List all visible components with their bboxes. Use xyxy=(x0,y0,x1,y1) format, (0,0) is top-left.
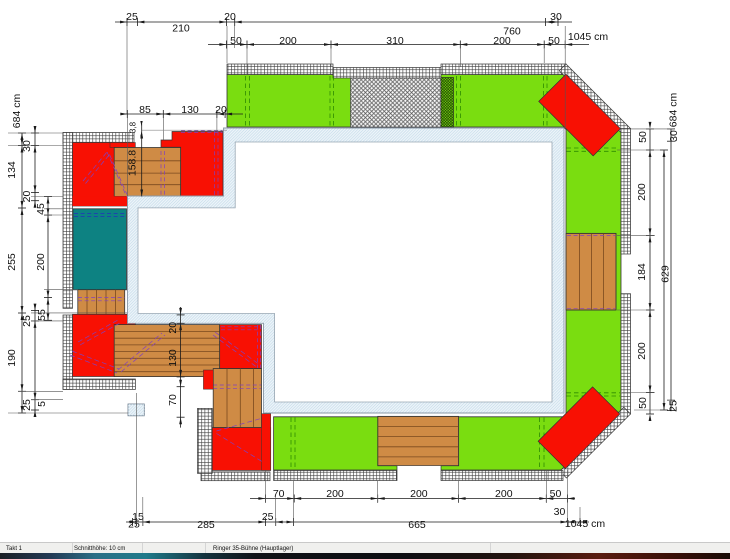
svg-text:684 cm: 684 cm xyxy=(11,94,23,129)
svg-text:25: 25 xyxy=(128,519,140,531)
svg-text:200: 200 xyxy=(636,342,648,360)
svg-text:158.8: 158.8 xyxy=(127,150,139,176)
svg-text:629: 629 xyxy=(660,265,672,283)
svg-text:5: 5 xyxy=(36,401,48,407)
svg-text:25: 25 xyxy=(668,400,680,412)
svg-text:210: 210 xyxy=(172,23,190,35)
svg-text:184: 184 xyxy=(636,263,648,281)
svg-text:30: 30 xyxy=(550,11,562,23)
svg-text:25: 25 xyxy=(126,11,138,23)
svg-text:20: 20 xyxy=(215,104,227,116)
svg-text:134: 134 xyxy=(6,161,18,179)
svg-text:50: 50 xyxy=(637,131,649,143)
svg-text:130: 130 xyxy=(167,349,179,367)
svg-text:200: 200 xyxy=(35,253,47,271)
svg-text:50: 50 xyxy=(637,397,649,409)
svg-text:30: 30 xyxy=(668,130,680,142)
svg-text:255: 255 xyxy=(6,253,18,271)
svg-text:20: 20 xyxy=(224,11,236,23)
svg-text:200: 200 xyxy=(493,35,511,47)
svg-text:25: 25 xyxy=(21,399,33,411)
svg-text:665: 665 xyxy=(408,519,426,531)
svg-text:50: 50 xyxy=(230,35,242,47)
svg-text:20: 20 xyxy=(167,322,179,334)
svg-text:310: 310 xyxy=(386,35,404,47)
svg-text:130: 130 xyxy=(181,104,199,116)
svg-text:1045 cm: 1045 cm xyxy=(565,518,606,530)
svg-text:3,8: 3,8 xyxy=(129,121,138,133)
svg-text:70: 70 xyxy=(273,488,285,500)
svg-text:190: 190 xyxy=(6,349,18,367)
svg-text:200: 200 xyxy=(636,183,648,201)
svg-text:200: 200 xyxy=(326,488,344,500)
svg-text:25: 25 xyxy=(262,511,274,523)
svg-text:200: 200 xyxy=(495,488,513,500)
svg-text:55: 55 xyxy=(36,309,48,321)
svg-text:684 cm: 684 cm xyxy=(668,93,680,128)
svg-text:200: 200 xyxy=(410,488,428,500)
svg-text:200: 200 xyxy=(279,35,297,47)
svg-text:50: 50 xyxy=(548,35,560,47)
svg-text:70: 70 xyxy=(167,394,179,406)
svg-text:30: 30 xyxy=(554,506,566,518)
svg-text:285: 285 xyxy=(197,519,215,531)
svg-text:1045 cm: 1045 cm xyxy=(568,31,609,43)
svg-text:85: 85 xyxy=(139,104,151,116)
svg-text:30: 30 xyxy=(21,140,33,152)
svg-text:50: 50 xyxy=(550,488,562,500)
